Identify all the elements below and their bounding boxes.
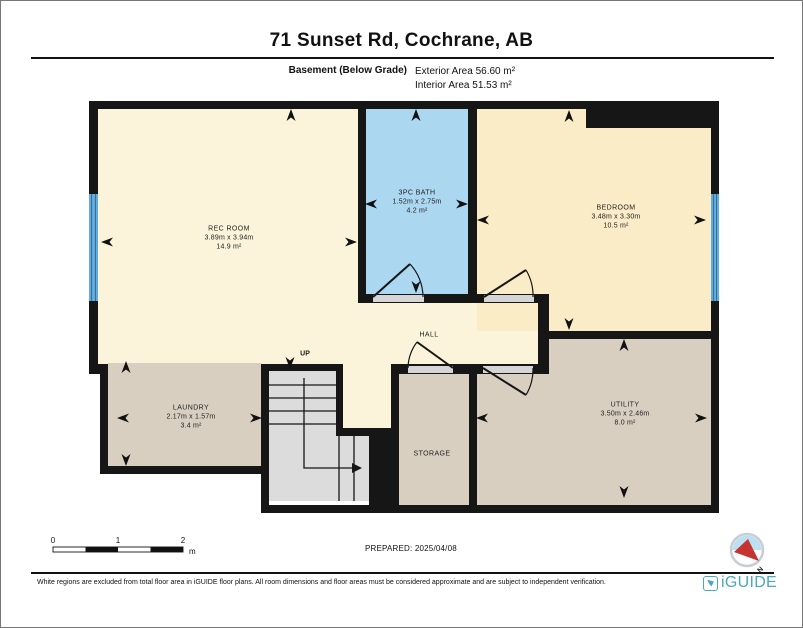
bedroom-label: BEDROOM 3.48m x 3.30m 10.5 m² — [592, 204, 641, 231]
storage-area — [399, 374, 469, 505]
scale-bar: 0 1 2 m — [51, 536, 196, 556]
room-area: 14.9 m² — [205, 243, 254, 252]
room-name: REC ROOM — [205, 225, 254, 234]
laundry-label: LAUNDRY 2.17m x 1.57m 3.4 m² — [167, 404, 216, 431]
floor-label: Basement (Below Grade) — [289, 65, 407, 76]
window-right — [711, 194, 719, 301]
room-dims: 3.48m x 3.30m — [592, 213, 641, 222]
window-left — [89, 194, 98, 301]
stairs-up-label: UP — [300, 351, 310, 358]
room-area: 4.2 m² — [393, 207, 442, 216]
floorplan-page: 0 1 2 m N 71 Sunset Rd, Cochrane, AB Bas… — [0, 0, 803, 628]
scale-tick-1: 1 — [116, 536, 121, 545]
room-name: BEDROOM — [592, 204, 641, 213]
hall-label: HALL — [419, 331, 438, 340]
room-dims: 1.52m x 2.75m — [393, 198, 442, 207]
room-dims: 3.89m x 3.94m — [205, 234, 254, 243]
scale-tick-0: 0 — [51, 536, 56, 545]
footer-divider — [31, 572, 774, 574]
room-area: 8.0 m² — [601, 419, 650, 428]
hall-strip-area — [343, 364, 391, 431]
scale-unit: m — [189, 547, 196, 556]
bath-label: 3PC BATH 1.52m x 2.75m 4.2 m² — [393, 189, 442, 216]
room-name: 3PC BATH — [393, 189, 442, 198]
room-name: HALL — [419, 331, 438, 340]
bath-door-opening — [373, 295, 424, 302]
utility-area-left — [477, 374, 549, 505]
room-area: 3.4 m² — [167, 422, 216, 431]
room-dims: 3.50m x 2.46m — [601, 410, 650, 419]
iguide-logo-glyph — [707, 580, 714, 587]
storage-label: STORAGE — [414, 450, 451, 459]
iguide-logo: iGUIDE — [703, 574, 777, 592]
page-title: 71 Sunset Rd, Cochrane, AB — [1, 30, 802, 52]
room-fills — [98, 109, 711, 505]
prepared-date: PREPARED: 2025/04/08 — [365, 544, 457, 553]
disclaimer-text: White regions are excluded from total fl… — [37, 579, 606, 586]
scale-tick-2: 2 — [181, 536, 186, 545]
room-dims: 2.17m x 1.57m — [167, 413, 216, 422]
area-summary: Exterior Area 56.60 m² Interior Area 51.… — [415, 65, 515, 93]
floorplan-drawing: 0 1 2 m N — [1, 1, 803, 628]
bedroom-door-opening — [484, 295, 534, 302]
room-name: LAUNDRY — [167, 404, 216, 413]
room-area: 10.5 m² — [592, 222, 641, 231]
utility-label: UTILITY 3.50m x 2.46m 8.0 m² — [601, 401, 650, 428]
rec-room-label: REC ROOM 3.89m x 3.94m 14.9 m² — [205, 225, 254, 252]
stair-flight-area — [269, 371, 336, 436]
iguide-logo-text: iGUIDE — [721, 574, 777, 592]
header-divider — [31, 57, 774, 59]
interior-area: Interior Area 51.53 m² — [415, 79, 515, 93]
room-name: STORAGE — [414, 450, 451, 459]
room-name: UTILITY — [601, 401, 650, 410]
iguide-logo-icon — [703, 576, 718, 591]
storage-door-opening — [408, 366, 453, 373]
exterior-area: Exterior Area 56.60 m² — [415, 65, 515, 79]
compass-icon: N — [731, 534, 765, 574]
